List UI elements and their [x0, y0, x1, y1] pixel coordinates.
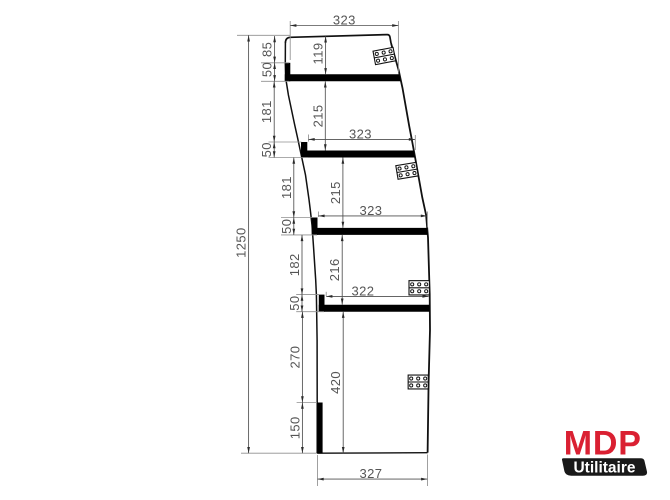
- svg-text:323: 323: [360, 203, 383, 218]
- svg-text:50: 50: [260, 62, 275, 77]
- svg-text:50: 50: [259, 142, 274, 157]
- svg-text:119: 119: [311, 43, 326, 65]
- svg-text:216: 216: [327, 258, 342, 281]
- svg-text:150: 150: [287, 416, 302, 439]
- svg-text:215: 215: [328, 181, 343, 204]
- svg-text:50: 50: [287, 296, 302, 311]
- svg-text:181: 181: [279, 176, 294, 199]
- svg-text:182: 182: [287, 253, 302, 276]
- svg-text:323: 323: [349, 127, 372, 142]
- svg-text:322: 322: [352, 284, 375, 299]
- svg-text:323: 323: [333, 13, 356, 28]
- svg-text:Utilitaire: Utilitaire: [573, 459, 635, 476]
- svg-text:50: 50: [279, 219, 294, 234]
- svg-text:215: 215: [310, 104, 325, 127]
- svg-text:85: 85: [260, 42, 275, 57]
- svg-text:420: 420: [328, 371, 343, 394]
- svg-text:MDP: MDP: [564, 424, 642, 462]
- svg-text:327: 327: [360, 466, 383, 481]
- svg-text:270: 270: [287, 346, 302, 369]
- svg-text:1250: 1250: [234, 227, 249, 258]
- svg-text:181: 181: [259, 100, 274, 123]
